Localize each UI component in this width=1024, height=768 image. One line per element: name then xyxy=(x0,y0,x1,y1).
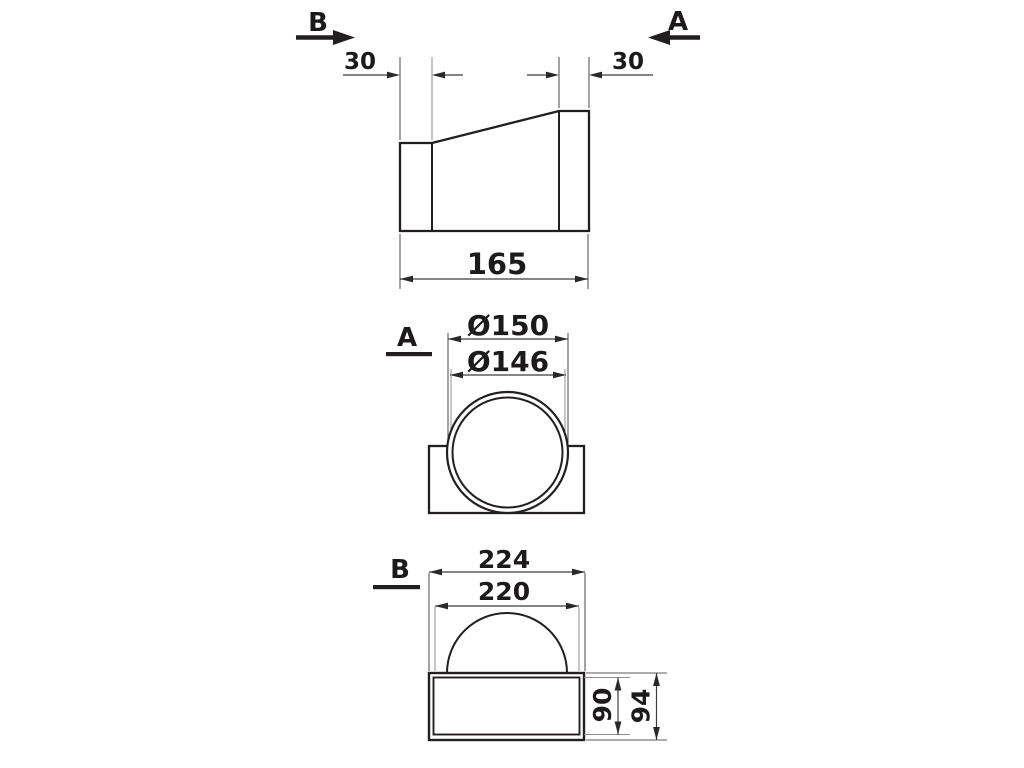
section-a-title: A xyxy=(386,323,432,356)
arrowhead-icon xyxy=(615,722,622,735)
arrowhead-icon xyxy=(555,336,568,343)
dimension-value: 30 xyxy=(612,49,644,75)
spigot-inner-circle xyxy=(453,398,563,508)
side-view: B A 30 30 xyxy=(296,7,700,289)
arrowhead-icon xyxy=(387,72,400,79)
drawing-canvas: B A 30 30 xyxy=(0,0,1024,768)
arrowhead-icon xyxy=(432,72,445,79)
rect-duct-outer xyxy=(429,673,584,740)
arrowhead-icon xyxy=(450,372,463,379)
dimension-value: 90 xyxy=(588,688,617,723)
dimension-outer-diameter: Ø150 xyxy=(448,309,568,342)
arrowhead-icon xyxy=(435,603,448,610)
dimension-value: 30 xyxy=(344,49,376,75)
dimension-value: Ø150 xyxy=(467,309,549,342)
rect-duct-inner xyxy=(434,678,580,735)
dimension-value: 94 xyxy=(627,689,656,724)
arrowhead-icon xyxy=(653,727,660,740)
dimension-inner-height: 90 xyxy=(588,678,621,735)
arrowhead-icon xyxy=(546,72,559,79)
section-a-arrow-icon xyxy=(648,30,670,45)
section-a-view: A Ø150 Ø146 xyxy=(386,309,584,513)
view-label: A xyxy=(397,323,417,353)
dimension-value: 220 xyxy=(478,577,530,606)
view-label-underline xyxy=(373,585,420,589)
adapter-body-outline xyxy=(400,111,589,231)
arrowhead-icon xyxy=(553,372,566,379)
technical-drawing: B A 30 30 xyxy=(0,0,1024,768)
arrowhead-icon xyxy=(429,569,442,576)
dimension-value: Ø146 xyxy=(467,345,549,378)
section-arrow-a: A xyxy=(648,7,700,45)
dimension-value: 224 xyxy=(478,545,530,574)
section-a-label: A xyxy=(668,7,688,37)
dimension-outer-height: 94 xyxy=(627,673,660,740)
arrowhead-icon xyxy=(448,336,461,343)
section-b-arrow-icon xyxy=(333,30,355,45)
dimension-outer-width: 224 xyxy=(429,545,585,575)
arrowhead-icon xyxy=(572,569,585,576)
section-arrow-b: B xyxy=(296,8,355,45)
section-b-title: B xyxy=(373,555,420,589)
arrowhead-icon xyxy=(575,276,588,283)
section-b-label: B xyxy=(308,8,328,38)
arrowhead-icon xyxy=(589,72,602,79)
arrowhead-icon xyxy=(653,673,660,686)
duct-semicircle xyxy=(447,613,567,673)
dimension-inner-diameter: Ø146 xyxy=(450,345,566,378)
dimension-inner-width: 220 xyxy=(435,577,579,609)
dimension-length: 165 xyxy=(400,247,588,282)
arrowhead-icon xyxy=(400,276,413,283)
dimension-collar-left: 30 xyxy=(343,49,463,78)
view-label-underline xyxy=(386,352,432,356)
view-label: B xyxy=(390,555,410,585)
dimension-collar-right: 30 xyxy=(527,49,653,78)
dimension-value: 165 xyxy=(467,247,528,281)
arrowhead-icon xyxy=(566,603,579,610)
section-b-view: B 224 220 xyxy=(373,545,667,740)
